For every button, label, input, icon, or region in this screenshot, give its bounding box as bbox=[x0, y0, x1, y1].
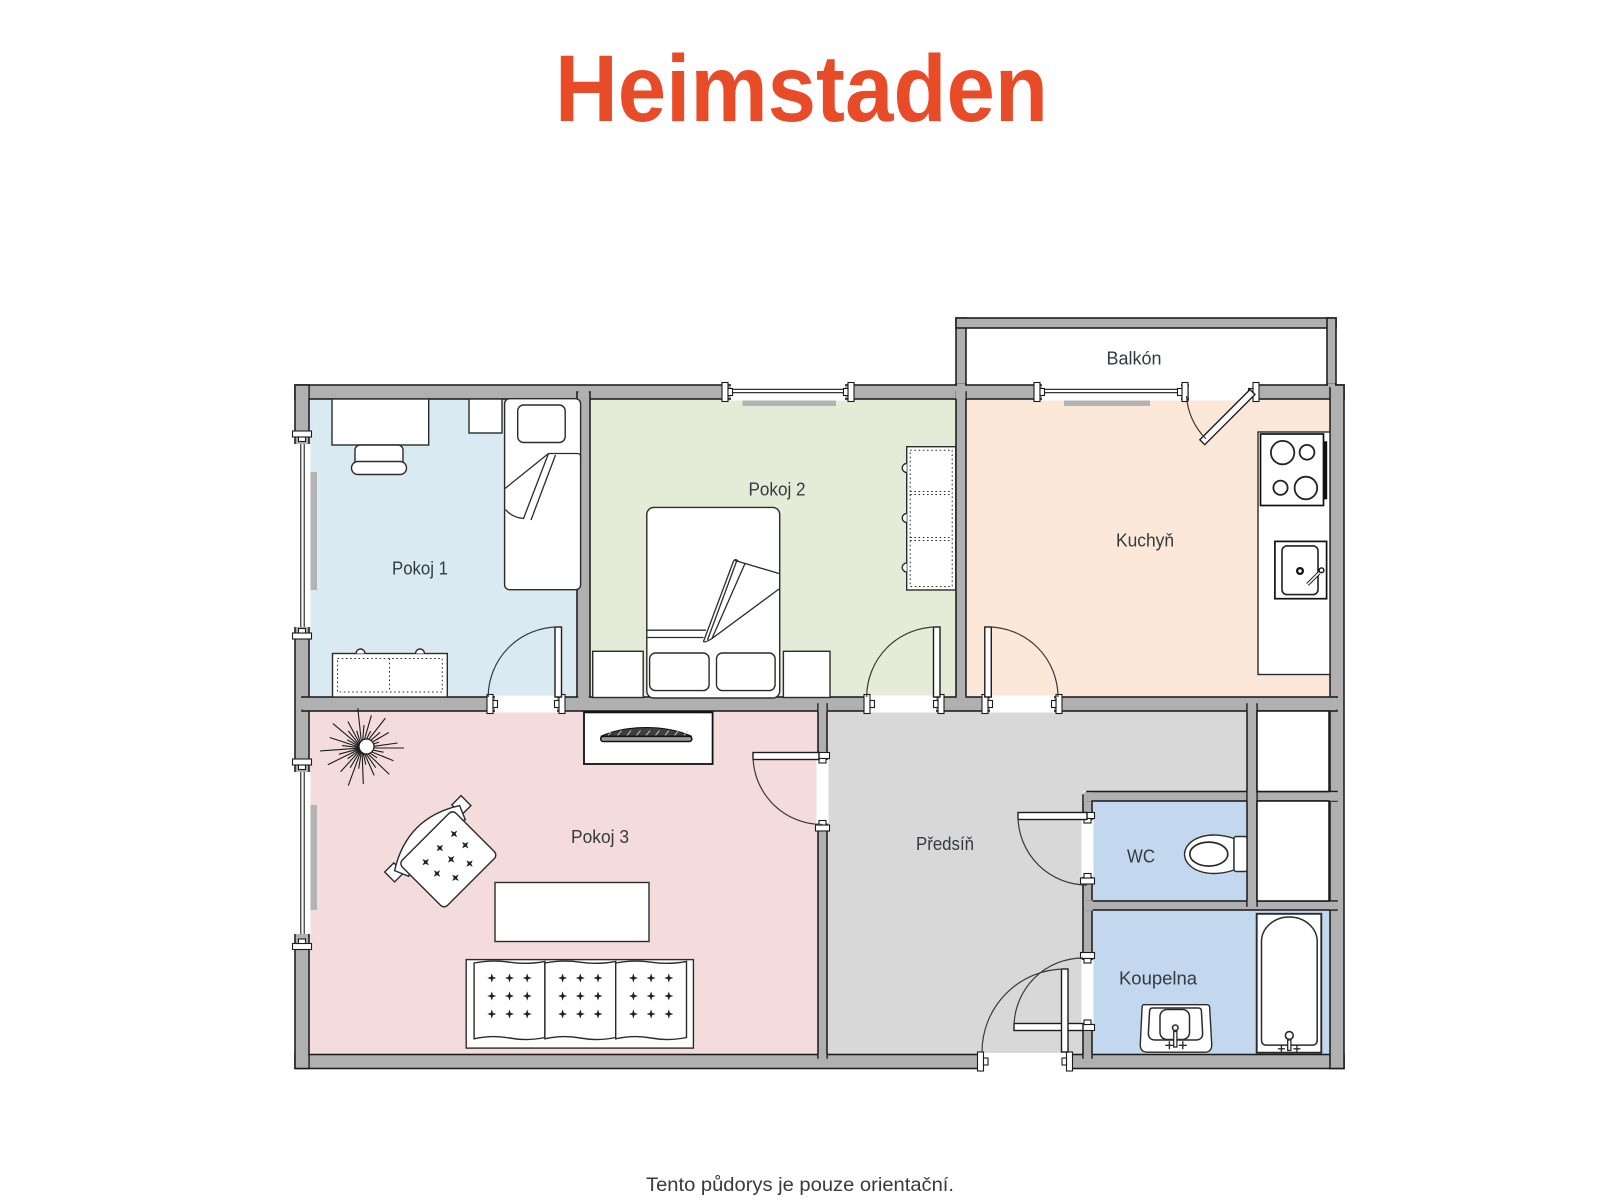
svg-text:Tento půdorys je pouze orienta: Tento půdorys je pouze orientační. bbox=[646, 1174, 954, 1196]
svg-text:WC: WC bbox=[1127, 846, 1155, 867]
svg-text:Koupelna: Koupelna bbox=[1119, 968, 1198, 989]
svg-text:Pokoj 3: Pokoj 3 bbox=[571, 826, 629, 847]
svg-text:Heimstaden: Heimstaden bbox=[555, 36, 1048, 142]
svg-text:Předsíň: Předsíň bbox=[916, 833, 974, 854]
svg-text:Pokoj 2: Pokoj 2 bbox=[749, 479, 806, 500]
svg-text:Pokoj 1: Pokoj 1 bbox=[392, 558, 448, 579]
svg-text:Kuchyň: Kuchyň bbox=[1116, 530, 1174, 551]
svg-text:Balkón: Balkón bbox=[1107, 348, 1162, 369]
